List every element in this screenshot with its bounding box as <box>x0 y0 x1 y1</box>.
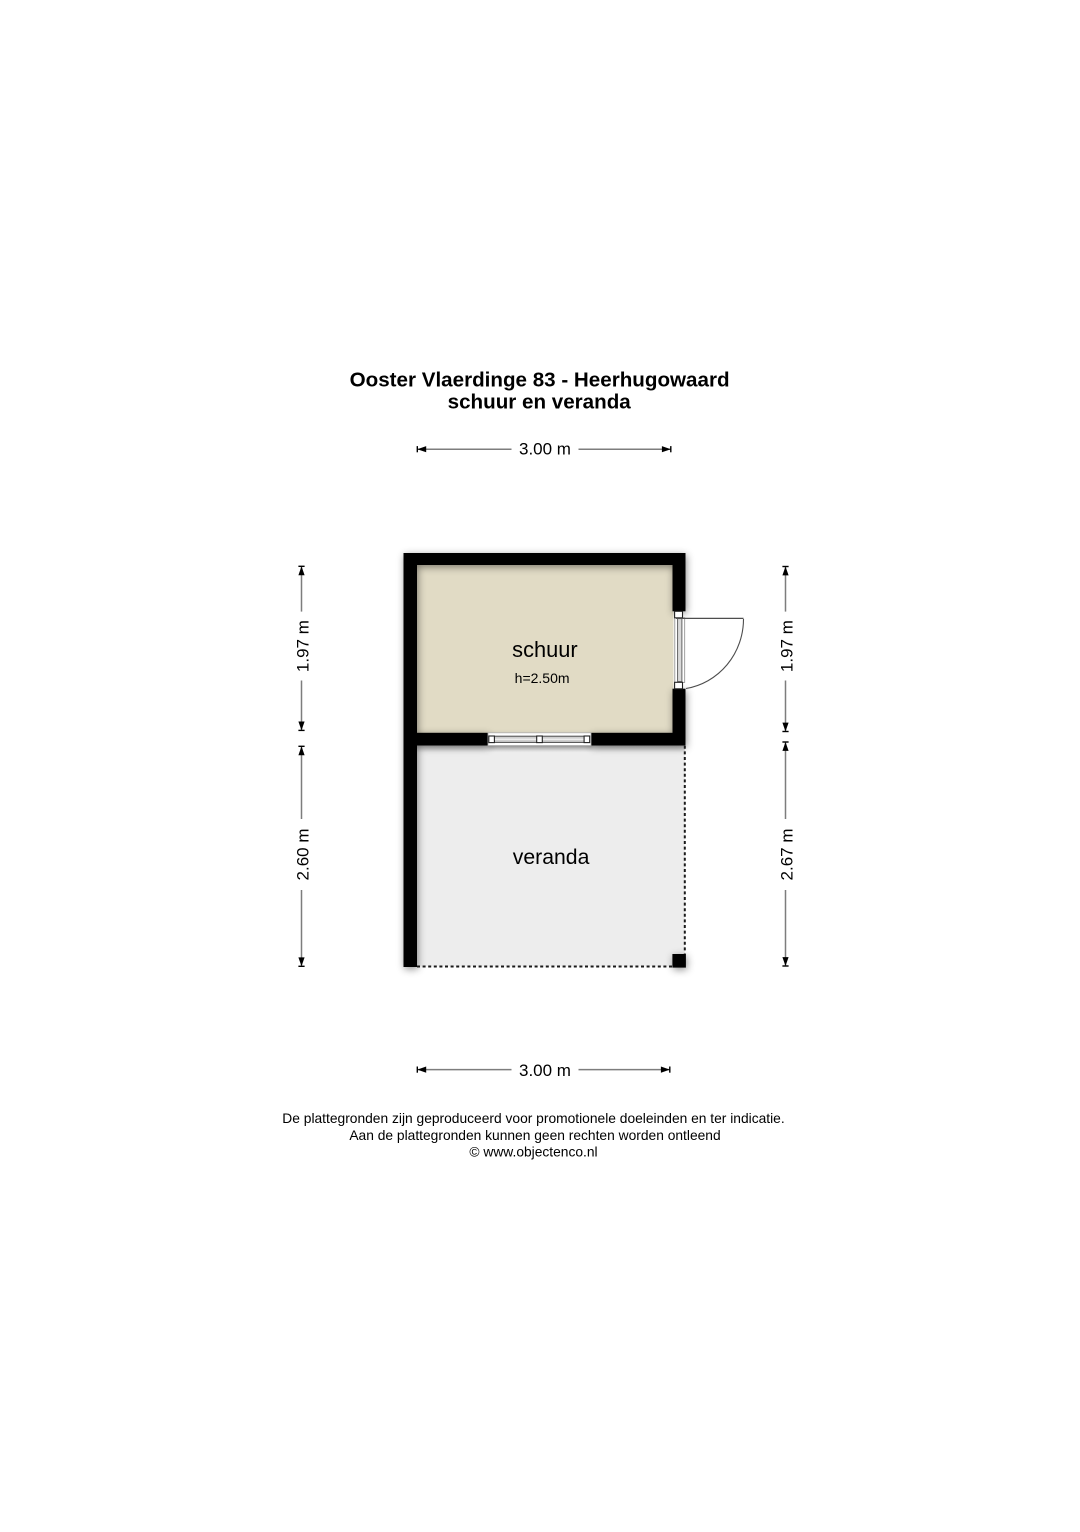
svg-text:2.67 m: 2.67 m <box>777 829 796 881</box>
svg-text:h=2.50m: h=2.50m <box>515 670 570 686</box>
svg-text:© www.objectenco.nl: © www.objectenco.nl <box>469 1145 597 1160</box>
svg-text:Aan de plattegronden kunnen ge: Aan de plattegronden kunnen geen rechten… <box>349 1128 720 1143</box>
svg-text:1.97 m: 1.97 m <box>777 620 796 672</box>
svg-text:3.00 m: 3.00 m <box>519 440 571 459</box>
svg-text:1.97 m: 1.97 m <box>293 620 312 672</box>
svg-text:veranda: veranda <box>513 846 590 869</box>
svg-text:2.60 m: 2.60 m <box>293 829 312 881</box>
svg-text:3.00 m: 3.00 m <box>519 1061 571 1080</box>
svg-text:schuur: schuur <box>512 637 577 662</box>
svg-text:schuur en veranda: schuur en veranda <box>448 391 632 414</box>
svg-text:Ooster Vlaerdinge 83 - Heerhug: Ooster Vlaerdinge 83 - Heerhugowaard <box>350 369 730 392</box>
svg-text:De plattegronden zijn geproduc: De plattegronden zijn geproduceerd voor … <box>282 1111 784 1126</box>
